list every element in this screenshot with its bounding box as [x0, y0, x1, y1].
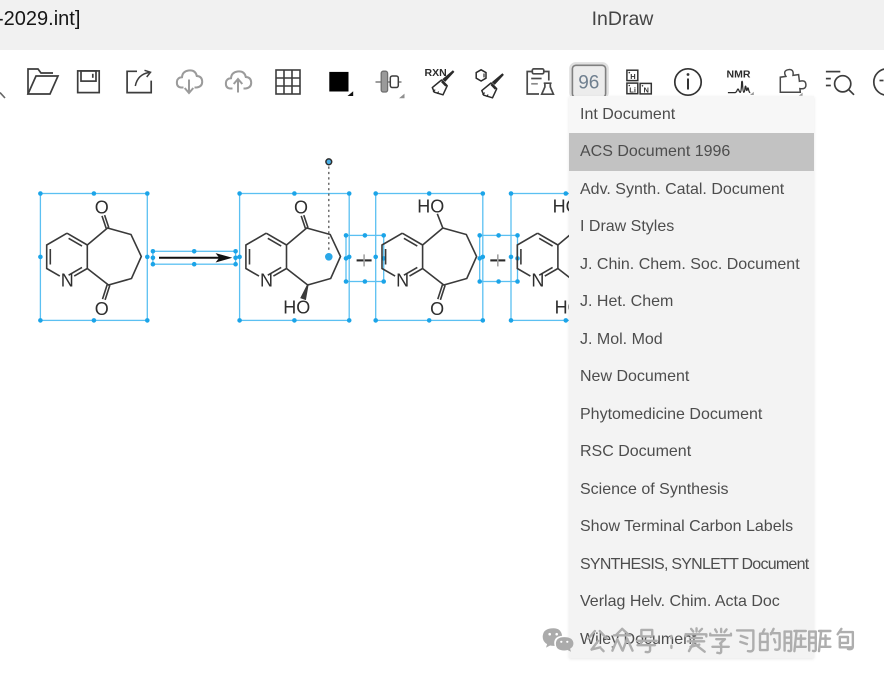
- svg-text:N: N: [396, 271, 409, 291]
- svg-text:N: N: [643, 86, 648, 95]
- svg-text:H: H: [630, 72, 635, 81]
- svg-text:N: N: [260, 271, 273, 291]
- svg-text:N: N: [531, 271, 544, 291]
- svg-text:N: N: [61, 271, 74, 291]
- svg-text:HO: HO: [283, 298, 310, 318]
- svg-text:RXN: RXN: [425, 67, 447, 79]
- svg-text:O: O: [95, 299, 109, 319]
- svg-text:O: O: [294, 198, 308, 218]
- svg-text:HO: HO: [417, 197, 444, 217]
- svg-text:96: 96: [578, 72, 599, 93]
- svg-text:NMR: NMR: [727, 69, 751, 81]
- svg-text:O: O: [430, 299, 444, 319]
- svg-text:O: O: [95, 198, 109, 218]
- svg-text:Li: Li: [629, 85, 636, 94]
